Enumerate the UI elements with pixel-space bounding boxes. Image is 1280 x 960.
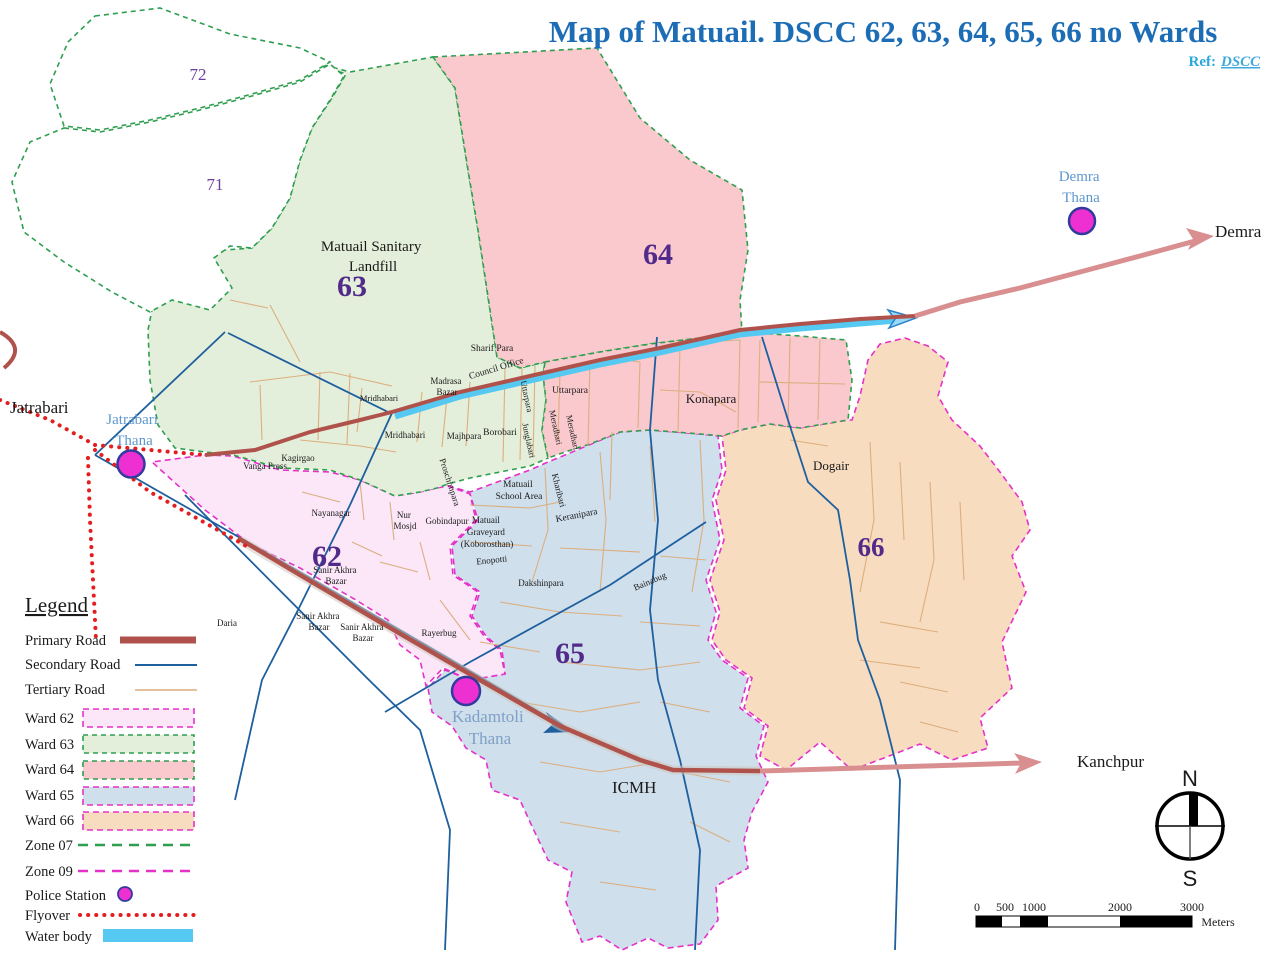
label-konapara: Konapara	[686, 391, 737, 406]
legend-label-ward-66: Ward 66	[25, 813, 74, 829]
legend-label-police-station: Police Station	[25, 888, 107, 904]
compass-south-label: S	[1183, 866, 1198, 891]
legend-label-zone-09: Zone 09	[25, 864, 73, 880]
label-jatrabari-thana: Jatrabari Thana	[106, 412, 161, 449]
compass-north-label: N	[1182, 766, 1198, 791]
flyover-segment	[88, 458, 96, 640]
label-gobindapur: Gobindapur	[426, 516, 469, 526]
label-kagirgao: Kagirgao	[281, 453, 315, 463]
label-kanchpur: Kanchpur	[1077, 752, 1144, 771]
label-majhpara: Majhpara	[447, 431, 481, 441]
scale-tick-0: 0	[974, 900, 980, 914]
legend-swatch-ward-65	[83, 787, 194, 805]
scale-tick-2000: 2000	[1108, 900, 1132, 914]
road-to-kanchpur	[760, 763, 1022, 771]
ref-dscc-link[interactable]: DSCC	[1220, 54, 1261, 70]
primary-road-left-stub	[0, 332, 15, 368]
label-mridhabari-1: Mridhabari	[360, 393, 399, 403]
police-station-jatrabari-marker	[118, 451, 145, 478]
map-canvas: Map of Matuail. DSCC 62, 63, 64, 65, 66 …	[0, 0, 1280, 960]
legend-heading: Legend	[25, 593, 88, 617]
legend-swatch-ward-63	[83, 735, 194, 753]
ward-regions	[12, 8, 1030, 950]
legend-label-ward-63: Ward 63	[25, 737, 74, 753]
label-icmh: ICMH	[612, 778, 656, 797]
label-demra-thana: Demra Thana	[1059, 169, 1104, 206]
label-sharif-para: Sharif Para	[471, 343, 514, 354]
compass-north-needle	[1189, 793, 1198, 826]
zone-72-number: 72	[190, 65, 207, 84]
ward-64-number: 64	[643, 238, 673, 271]
scale-tick-3000: 3000	[1180, 900, 1204, 914]
scale-bar-segment	[1020, 916, 1048, 927]
road-to-demra	[915, 241, 1195, 316]
legend: Legend Primary Road Secondary Road Terti…	[25, 593, 197, 945]
scale-tick-1000: 1000	[1022, 900, 1046, 914]
ward-66-number: 66	[858, 532, 885, 562]
label-mridhabari-2: Mridhabari	[385, 430, 426, 440]
page-title: Map of Matuail. DSCC 62, 63, 64, 65, 66 …	[549, 14, 1218, 49]
scale-bar-segment	[1120, 916, 1192, 927]
legend-label-zone-07: Zone 07	[25, 838, 73, 854]
label-sanir-akhra-bazar-2: Sanir Akhra Bazar	[296, 611, 342, 632]
legend-label-water-body: Water body	[25, 929, 93, 945]
legend-label-ward-65: Ward 65	[25, 788, 74, 804]
label-sanir-akhra-bazar-3: Sanir Akhra Bazar	[340, 622, 386, 643]
label-demra: Demra	[1215, 222, 1262, 241]
legend-label-primary-road: Primary Road	[25, 633, 107, 649]
legend-label-flyover: Flyover	[25, 908, 70, 924]
map-of-matuail: Map of Matuail. DSCC 62, 63, 64, 65, 66 …	[0, 0, 1280, 960]
legend-label-ward-64: Ward 64	[25, 762, 75, 778]
legend-swatch-ward-64	[83, 761, 194, 779]
police-station-kadamtoli-marker	[452, 677, 480, 705]
ward-65-number: 65	[555, 637, 585, 670]
scale-bar-segment	[976, 916, 1002, 927]
legend-label-secondary-road: Secondary Road	[25, 657, 121, 673]
legend-swatch-police-station	[118, 887, 132, 901]
label-daria: Daria	[217, 618, 237, 628]
label-nayanagar: Nayanagar	[312, 508, 351, 518]
ref-prefix: Ref:	[1189, 54, 1216, 70]
scale-bar: 0 500 1000 2000 3000 Meters	[974, 900, 1235, 929]
scale-unit-label: Meters	[1201, 915, 1235, 929]
legend-swatch-water-body	[103, 929, 193, 942]
label-uttarpara: Uttarpara	[552, 386, 589, 396]
legend-swatch-ward-66	[83, 812, 194, 830]
label-borobari: Borobari	[483, 428, 517, 438]
legend-label-ward-62: Ward 62	[25, 711, 74, 727]
demra-road-arrowhead	[1186, 228, 1214, 250]
scale-tick-500: 500	[996, 900, 1014, 914]
zone-71-number: 71	[207, 175, 224, 194]
police-station-demra-marker	[1069, 208, 1095, 234]
compass-rose: N S	[1155, 766, 1225, 891]
label-rayerbug: Rayerbug	[422, 628, 457, 638]
legend-swatch-ward-62	[83, 709, 194, 727]
legend-label-tertiary-road: Tertiary Road	[25, 682, 106, 698]
label-dakshinpara: Dakshinpara	[518, 578, 563, 588]
label-dogair: Dogair	[813, 458, 850, 473]
label-jatrabari: Jatrabari	[10, 398, 69, 417]
